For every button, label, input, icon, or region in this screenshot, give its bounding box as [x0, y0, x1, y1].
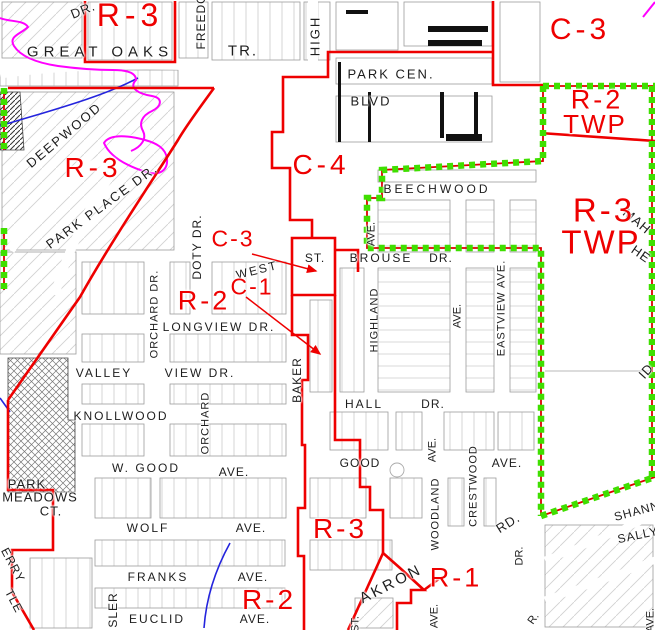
- street-label-good-ave-east: AVE.: [492, 457, 522, 469]
- street-label-brouse: BROUSE: [350, 252, 413, 264]
- street-label-orchard-dr: ORCHARD DR.: [150, 270, 161, 359]
- street-label-dr-southeast: DR.: [515, 547, 526, 566]
- street-label-tr: TR.: [228, 44, 258, 59]
- street-label-sler-fragment: SLER: [107, 592, 119, 627]
- cul-de-sac: [390, 463, 404, 477]
- street-label-highland: HIGHLAND: [370, 288, 381, 353]
- street-label-hall: HALL: [345, 398, 383, 410]
- street-label-doty-dr: DOTY DR.: [191, 214, 203, 279]
- street-label-woodland: WOODLAND: [431, 478, 442, 551]
- zone-label-c3-northeast: C-3: [550, 15, 610, 45]
- street-label-hall-dr: DR.: [421, 398, 445, 410]
- street-label-brouse-dr: DR.: [429, 252, 453, 264]
- street-label-w-good-ave: AVE.: [219, 466, 249, 478]
- street-label-w-good: W. GOOD: [112, 462, 180, 474]
- street-label-great-oaks: GREAT OAKS: [27, 45, 173, 60]
- street-label-wolf: WOLF: [127, 522, 170, 534]
- street-label-ave-southeast: AVE.: [646, 608, 655, 630]
- zone-label-c1-baker: C-1: [230, 276, 273, 299]
- zone-label-r2-twp-line2: TWP: [563, 111, 627, 137]
- zone-label-r2-south: R-2: [242, 586, 296, 614]
- street-label-st-west: ST.: [305, 252, 325, 264]
- zone-label-r1-southeast: R-1: [430, 565, 483, 592]
- hatch-area-park-meadows: [8, 358, 75, 492]
- street-label-ave-middle: AVE.: [453, 304, 464, 328]
- street-label-knollwood: KNOLLWOOD: [73, 410, 168, 422]
- street-label-baker: BAKER: [291, 357, 303, 403]
- street-label-blvd: BLVD: [351, 95, 392, 108]
- street-label-wolf-ave: AVE.: [236, 522, 266, 534]
- street-label-orchard: ORCHARD: [201, 392, 212, 455]
- street-label-meadows: MEADOWS: [2, 491, 78, 504]
- street-label-ct: CT.: [40, 505, 63, 518]
- zone-label-r3-deepwood: R-3: [64, 154, 121, 182]
- street-label-ave-woodland-south: AVE.: [430, 604, 441, 628]
- street-label-st-akron: ST.: [351, 616, 362, 630]
- zoning-map: DR.GREAT OAKSTR.FREEDOMHIGHPARK CEN.BLVD…: [0, 0, 655, 630]
- street-label-park-cen: PARK CEN.: [347, 68, 434, 81]
- street-label-beechwood: BEECHWOOD: [383, 183, 490, 195]
- street-label-high: HIGH: [309, 16, 322, 57]
- street-label-longview-dr: LONGVIEW DR.: [163, 321, 276, 333]
- street-label-ave-woodland-north: AVE.: [428, 438, 439, 462]
- zone-label-c4-center: C-4: [292, 151, 349, 179]
- street-label-eastview-ave: EASTVIEW AVE.: [497, 260, 508, 357]
- zone-label-c3-west-st: C-3: [211, 228, 254, 251]
- zone-label-r3-twp-east: R-3: [573, 194, 635, 227]
- street-label-ave-highland-north: AVE.: [367, 222, 378, 246]
- zone-label-r2-longview: R-2: [178, 288, 231, 315]
- zone-label-r3-baker-south: R-3: [313, 515, 367, 543]
- street-label-euclid: EUCLID: [129, 613, 185, 625]
- street-label-good: GOOD: [340, 457, 381, 469]
- zone-label-r3-twp-east-line2: TWP: [561, 226, 640, 259]
- street-label-view-dr: VIEW DR.: [165, 367, 236, 379]
- street-label-freedom: FREEDOM: [195, 0, 207, 50]
- zone-label-r3-great-oaks: R-3: [97, 0, 164, 31]
- street-label-franks: FRANKS: [128, 571, 189, 583]
- street-label-crestwood: CRESTWOOD: [469, 445, 480, 527]
- street-label-franks-ave: AVE.: [238, 571, 268, 583]
- street-label-valley: VALLEY: [76, 367, 132, 379]
